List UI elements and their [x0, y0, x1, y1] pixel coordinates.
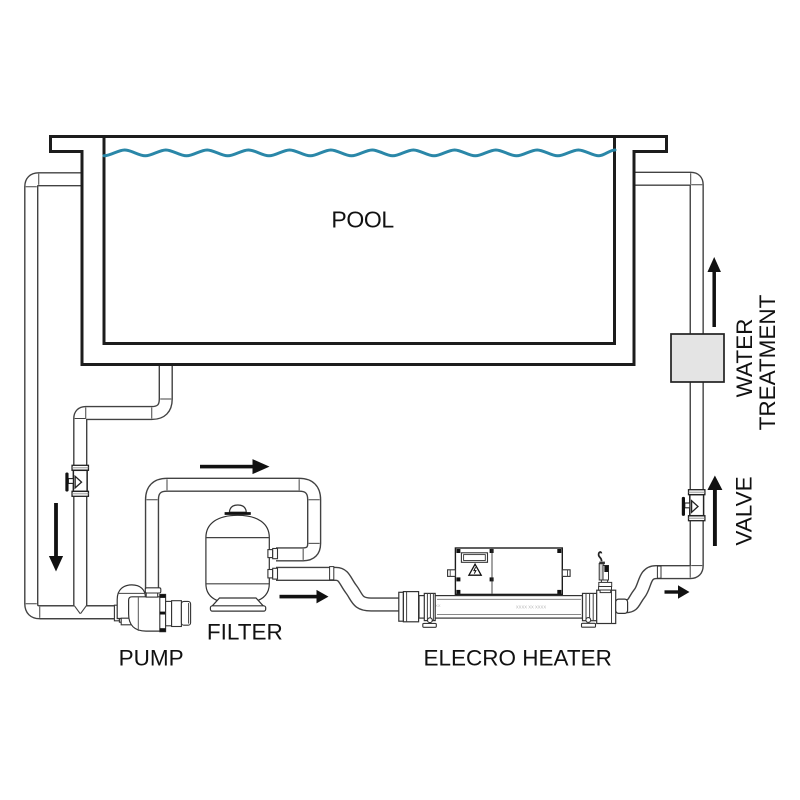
svg-text:VALVE: VALVE	[732, 476, 757, 545]
svg-text:PUMP: PUMP	[119, 645, 184, 670]
svg-text:ELECRO HEATER: ELECRO HEATER	[424, 645, 612, 670]
svg-text:WATER: WATER	[732, 319, 757, 398]
svg-text:TREATMENT: TREATMENT	[755, 294, 780, 430]
svg-text:XXXX XX XXXX: XXXX XX XXXX	[516, 604, 546, 609]
svg-text:POOL: POOL	[331, 207, 394, 233]
svg-text:FILTER: FILTER	[207, 619, 283, 644]
